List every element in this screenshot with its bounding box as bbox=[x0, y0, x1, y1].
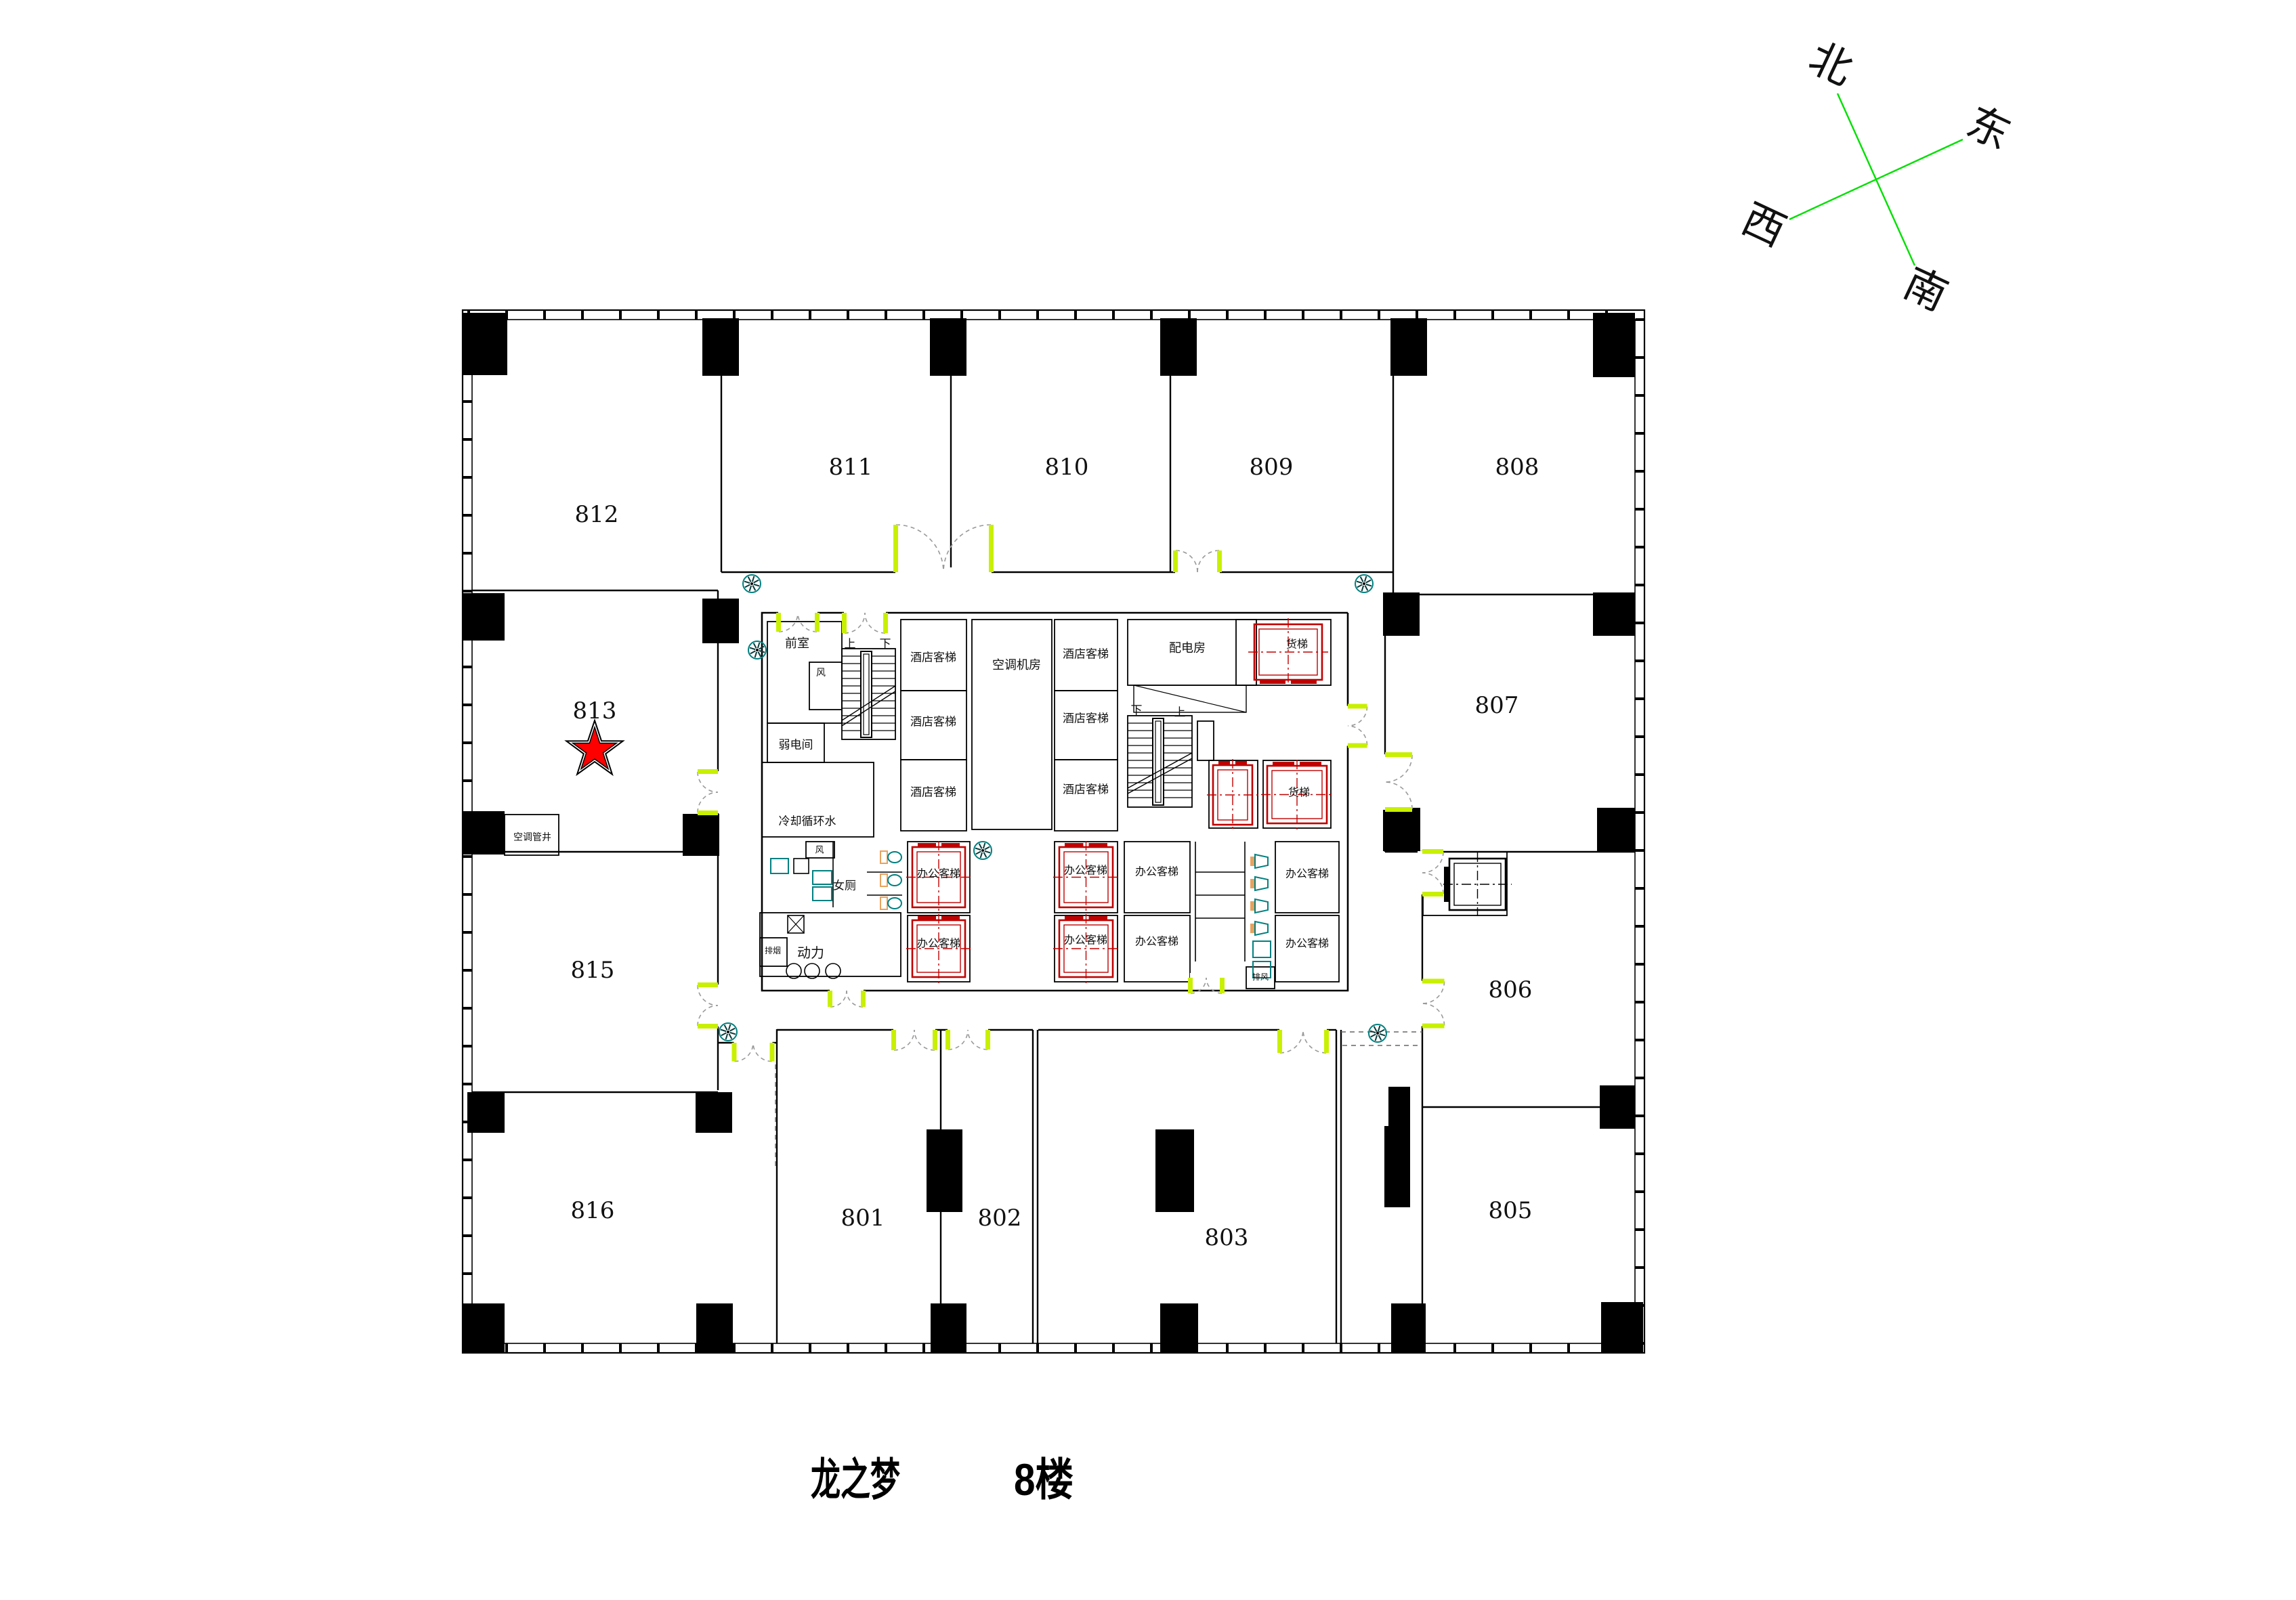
mop-sink bbox=[1253, 941, 1271, 957]
door-leaf bbox=[891, 1030, 896, 1050]
core-label-stair2-down: 下 bbox=[1131, 704, 1143, 717]
core-label-stair2-up: 上 bbox=[1174, 706, 1186, 719]
room-label-815: 815 bbox=[571, 957, 615, 984]
door-leaf bbox=[698, 1024, 718, 1029]
structural-column bbox=[702, 318, 739, 376]
title-project: 龙之梦 bbox=[811, 1454, 900, 1505]
door-leaf bbox=[1385, 807, 1412, 812]
structural-column bbox=[463, 313, 507, 375]
core-label-office-elevator-6: 办公客梯 bbox=[1135, 936, 1178, 948]
door-swing-arc bbox=[896, 525, 943, 572]
core-label-office-elevator-2: 办公客梯 bbox=[917, 938, 960, 950]
structural-column bbox=[463, 593, 505, 641]
door-leaf bbox=[893, 525, 898, 572]
room-label-809: 809 bbox=[1250, 454, 1294, 481]
core-label-smoke-exhaust: 排烟 bbox=[765, 946, 781, 955]
wall-line bbox=[1134, 685, 1246, 712]
core-label-power-room: 动力 bbox=[797, 945, 824, 961]
door-leaf bbox=[989, 525, 994, 572]
core-label-office-elevator-4: 办公客梯 bbox=[1064, 934, 1107, 947]
core-label-cooling-water: 冷却循环水 bbox=[779, 815, 836, 828]
core-label-ac-machine-room: 空调机房 bbox=[992, 658, 1041, 672]
room-label-813: 813 bbox=[573, 697, 617, 725]
structural-column bbox=[1391, 1303, 1426, 1353]
ceiling-fan-icon bbox=[1355, 575, 1373, 592]
door-leaf bbox=[815, 613, 820, 632]
structural-column bbox=[696, 1303, 733, 1353]
door-opening bbox=[778, 608, 817, 618]
compass-ew-axis bbox=[1789, 139, 1963, 219]
structural-column bbox=[1390, 318, 1427, 376]
room-outline bbox=[1197, 721, 1214, 760]
structural-column bbox=[463, 811, 505, 855]
door-leaf bbox=[1217, 550, 1222, 572]
core-label-hotel-elevator-5: 酒店客梯 bbox=[1063, 712, 1109, 725]
room-outline bbox=[1124, 915, 1190, 982]
room-label-808: 808 bbox=[1495, 454, 1539, 481]
structural-column bbox=[1600, 1085, 1635, 1129]
toilet-fixture bbox=[880, 897, 901, 909]
door-leaf bbox=[1348, 704, 1367, 709]
elevator-symbol bbox=[1053, 914, 1119, 983]
door-leaf bbox=[842, 613, 847, 633]
room-label-801: 801 bbox=[841, 1205, 885, 1232]
room-outline bbox=[1423, 852, 1507, 915]
door-leaf bbox=[1385, 752, 1412, 757]
room-label-803: 803 bbox=[1205, 1224, 1249, 1251]
door-leaf bbox=[945, 1030, 950, 1050]
structural-column bbox=[1160, 1303, 1198, 1353]
core-label-stair1-down: 下 bbox=[880, 638, 891, 651]
room-label-807: 807 bbox=[1475, 692, 1519, 719]
structural-column bbox=[467, 1092, 505, 1133]
core-label-office-elevator-1: 办公客梯 bbox=[917, 868, 960, 880]
room-label-806: 806 bbox=[1489, 976, 1533, 1003]
structural-column bbox=[927, 1129, 962, 1212]
toilet-fixture bbox=[880, 874, 901, 886]
elevator-symbol bbox=[1207, 759, 1258, 831]
compass-west-label: 西 bbox=[1735, 196, 1792, 256]
ceiling-fan-icon bbox=[1369, 1024, 1386, 1042]
red-star-marker bbox=[573, 727, 617, 769]
structural-column bbox=[696, 1092, 732, 1133]
ceiling-fan-icon bbox=[719, 1023, 737, 1041]
elevator-symbol bbox=[1443, 852, 1512, 916]
urinal-fixture bbox=[1250, 899, 1268, 913]
core-label-power-distribution-room: 配电房 bbox=[1169, 641, 1206, 655]
ac-pipe-shaft-label: 空调管井 bbox=[513, 831, 551, 842]
door-leaf bbox=[1173, 550, 1178, 572]
structural-column bbox=[1383, 592, 1420, 636]
door-leaf bbox=[698, 982, 718, 987]
core-label-hotel-elevator-3: 酒店客梯 bbox=[910, 786, 956, 799]
core-label-womens-toilet: 女厕 bbox=[833, 880, 856, 892]
floor-plan-drawing: 8128118108098088138078158068168058018028… bbox=[0, 0, 2296, 1600]
room-label-812: 812 bbox=[575, 501, 619, 528]
structural-column bbox=[1155, 1129, 1194, 1212]
urinal-fixture bbox=[1250, 877, 1268, 890]
room-outline bbox=[972, 620, 1052, 829]
door-leaf bbox=[985, 1030, 990, 1050]
structural-column bbox=[1388, 1087, 1410, 1129]
urinal-fixture bbox=[1250, 922, 1268, 935]
core-label-office-elevator-7: 办公客梯 bbox=[1285, 868, 1329, 880]
room-outline bbox=[1055, 691, 1118, 760]
door-leaf bbox=[732, 1043, 737, 1062]
door-leaf bbox=[828, 991, 832, 1007]
structural-column bbox=[930, 318, 966, 376]
core-label-office-elevator-8: 办公客梯 bbox=[1285, 938, 1329, 950]
structural-column bbox=[1593, 313, 1635, 377]
structural-column bbox=[463, 1303, 505, 1353]
staircase bbox=[842, 651, 895, 737]
door-leaf bbox=[770, 1043, 775, 1062]
pantry-fixtures bbox=[771, 859, 832, 901]
core-label-hotel-elevator-4: 酒店客梯 bbox=[1063, 648, 1109, 661]
title-floor: 8楼 bbox=[1014, 1454, 1073, 1505]
room-label-816: 816 bbox=[571, 1197, 615, 1224]
door-leaf bbox=[1277, 1030, 1282, 1053]
room-label-810: 810 bbox=[1045, 454, 1089, 481]
room-label-802: 802 bbox=[978, 1205, 1022, 1232]
floorplan-canvas: 8128118108098088138078158068168058018028… bbox=[0, 0, 2296, 1600]
core-label-freight-elevator-1: 货梯 bbox=[1286, 639, 1308, 651]
door-leaf bbox=[698, 810, 718, 815]
door-leaf bbox=[883, 613, 888, 633]
structural-column bbox=[1160, 318, 1197, 376]
core-label-hotel-elevator-2: 酒店客梯 bbox=[910, 716, 956, 729]
door-leaf bbox=[1422, 979, 1445, 984]
urinal-fixture bbox=[1250, 855, 1268, 868]
compass-rose bbox=[1789, 93, 1963, 265]
core-label-stair1-up: 上 bbox=[845, 638, 856, 651]
core-label-vent-shaft-2: 风 bbox=[815, 845, 824, 855]
ceiling-fan-icon bbox=[748, 641, 766, 659]
door-leaf bbox=[1422, 892, 1443, 896]
room-outline bbox=[760, 913, 901, 976]
room-outline bbox=[1209, 760, 1258, 828]
door-leaf bbox=[1422, 1024, 1445, 1029]
core-label-office-elevator-5: 办公客梯 bbox=[1135, 866, 1178, 878]
door-leaf bbox=[1422, 849, 1443, 854]
ceiling-fan-icon bbox=[974, 842, 992, 859]
room-label-811: 811 bbox=[829, 454, 873, 481]
core-label-office-elevator-3: 办公客梯 bbox=[1064, 865, 1107, 877]
structural-column bbox=[931, 1303, 966, 1353]
core-label-exhaust-air: 排风 bbox=[1252, 972, 1269, 982]
ceiling-fan-icon bbox=[743, 575, 761, 592]
structural-column bbox=[1593, 592, 1635, 636]
structural-column bbox=[1384, 1126, 1410, 1207]
core-label-vent-shaft: 风 bbox=[816, 667, 826, 678]
door-leaf bbox=[1324, 1030, 1329, 1053]
door-leaf bbox=[1348, 743, 1367, 748]
door-leaf bbox=[1220, 978, 1225, 993]
door-leaf bbox=[933, 1030, 937, 1050]
door-leaf bbox=[1188, 978, 1193, 993]
toilet-fixture bbox=[880, 851, 901, 863]
structural-column bbox=[702, 599, 739, 643]
core-label-freight-elevator-2: 货梯 bbox=[1288, 787, 1310, 799]
structural-column bbox=[683, 814, 719, 856]
door-leaf bbox=[698, 769, 718, 774]
staircase bbox=[1128, 718, 1192, 805]
room-outline bbox=[809, 662, 842, 710]
core-label-weak-current-room: 弱电间 bbox=[779, 739, 813, 752]
door-leaf bbox=[776, 613, 781, 632]
elevator-symbol bbox=[1248, 618, 1328, 686]
compass-south-label: 南 bbox=[1896, 260, 1954, 320]
compass-east-label: 东 bbox=[1959, 99, 2017, 159]
core-label-ante-room: 前室 bbox=[785, 636, 809, 650]
structural-column bbox=[1597, 808, 1635, 851]
core-label-hotel-elevator-6: 酒店客梯 bbox=[1063, 783, 1109, 796]
room-label-805: 805 bbox=[1489, 1197, 1533, 1224]
structural-column bbox=[1601, 1302, 1643, 1353]
structural-column bbox=[1383, 808, 1420, 851]
door-leaf bbox=[861, 991, 866, 1007]
compass-north-label: 北 bbox=[1802, 35, 1859, 95]
elevator-symbol bbox=[1053, 841, 1119, 913]
core-label-hotel-elevator-1: 酒店客梯 bbox=[910, 651, 956, 664]
